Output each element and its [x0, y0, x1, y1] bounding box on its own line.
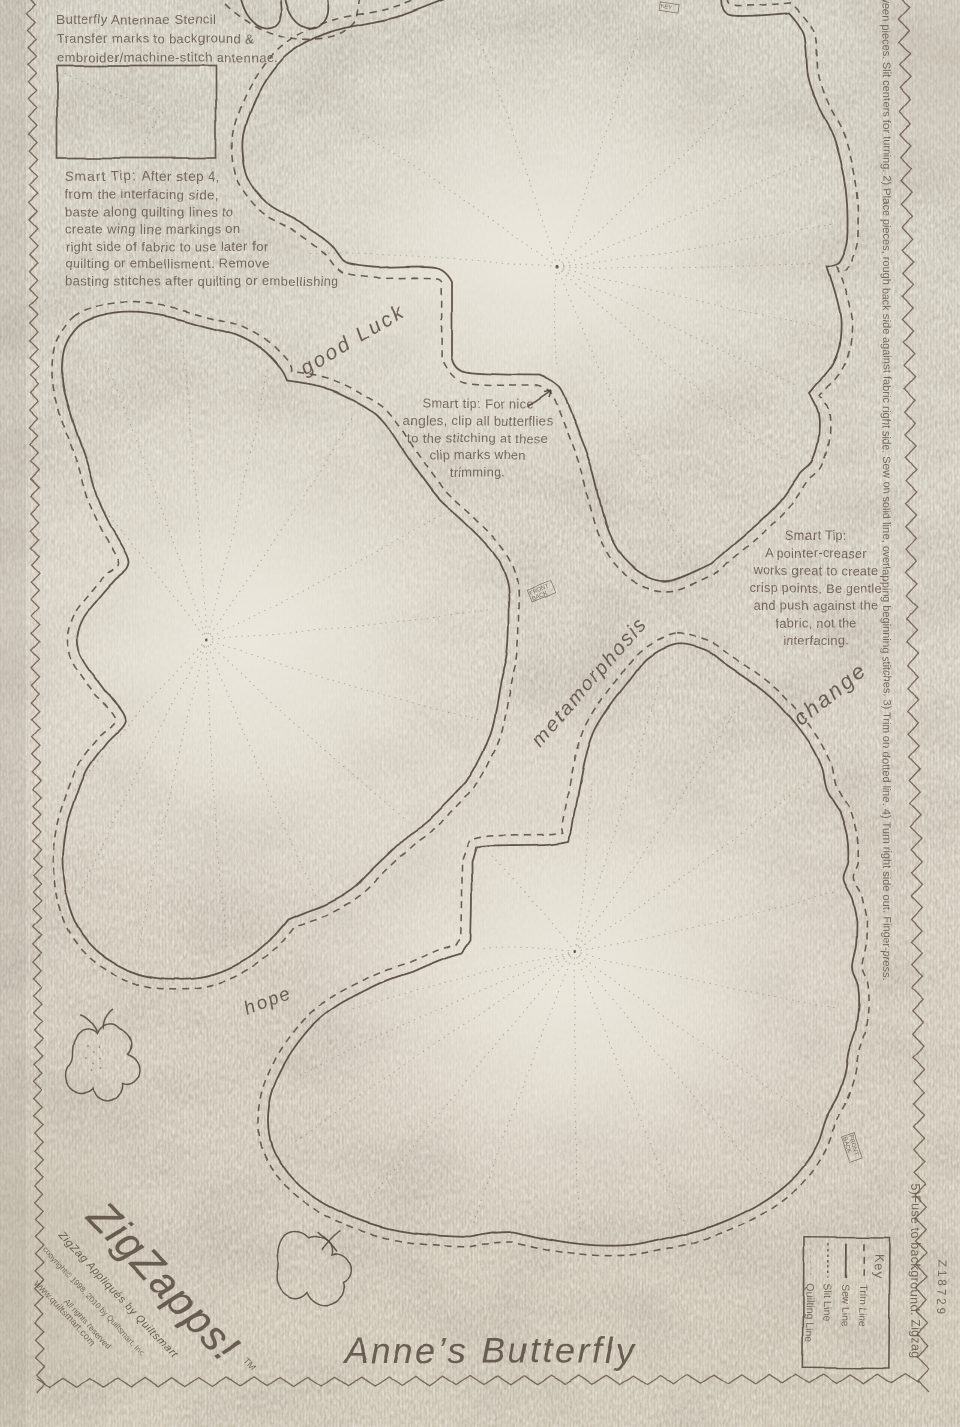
svg-text:Key: Key	[872, 1254, 887, 1280]
svg-text:baste along quilting lines to: baste along quilting lines to	[65, 204, 233, 219]
svg-text:Slit Line: Slit Line	[820, 1283, 832, 1321]
svg-text:to the stitching at these: to the stitching at these	[407, 430, 548, 445]
svg-text:Trim Line: Trim Line	[856, 1284, 868, 1328]
svg-text:Butterfly Antennae Stencil: Butterfly Antennae Stencil	[57, 12, 216, 27]
svg-text:fabric, not the: fabric, not the	[775, 616, 857, 631]
svg-text:Anne’s Butterfly: Anne’s Butterfly	[342, 1330, 635, 1371]
svg-text:Smart Tip:: Smart Tip:	[785, 528, 846, 543]
svg-text:clip marks when: clip marks when	[429, 448, 527, 463]
svg-text:5)Fuse to background. Zigzag: 5)Fuse to background. Zigzag	[908, 1184, 922, 1358]
svg-text:works great to create: works great to create	[752, 563, 879, 578]
svg-text:Smart tip: For nice: Smart tip: For nice	[422, 396, 534, 411]
svg-text:embroider/machine-stitch anten: embroider/machine-stitch antennae.	[57, 50, 278, 65]
svg-text:crisp points. Be gentle: crisp points. Be gentle	[750, 581, 883, 596]
svg-text:right side of fabric to use la: right side of fabric to use later for	[65, 239, 269, 254]
svg-text:Quilting Line: Quilting Line	[803, 1283, 816, 1342]
svg-text:quilting or embellisment. Rem: quilting or embellisment. Remove	[65, 256, 270, 271]
svg-text:tween pieces. Slit centers fo: tween pieces. Slit centers for turning. …	[880, 0, 892, 981]
svg-text:A pointer-creaser: A pointer-creaser	[765, 546, 868, 561]
svg-text:create wing line markings on: create wing line markings on	[65, 222, 241, 237]
svg-text:Transfer marks to background &: Transfer marks to background &	[57, 31, 254, 46]
svg-text:angles, clip all butterflies: angles, clip all butterflies	[403, 413, 553, 428]
svg-text:interfacing.: interfacing.	[783, 633, 849, 648]
svg-text:Smart Tip: After step 4,: Smart Tip: After step 4,	[65, 169, 219, 184]
svg-text:basting stitches after quiltin: basting stitches after quilting or embel…	[65, 274, 339, 289]
svg-text:Z18729: Z18729	[935, 1260, 947, 1317]
svg-text:Sew Line: Sew Line	[838, 1284, 850, 1327]
svg-text:from the interfacing side,: from the interfacing side,	[65, 187, 218, 202]
svg-text:trimming.: trimming.	[450, 465, 506, 480]
svg-text:and push against the: and push against the	[754, 598, 879, 613]
